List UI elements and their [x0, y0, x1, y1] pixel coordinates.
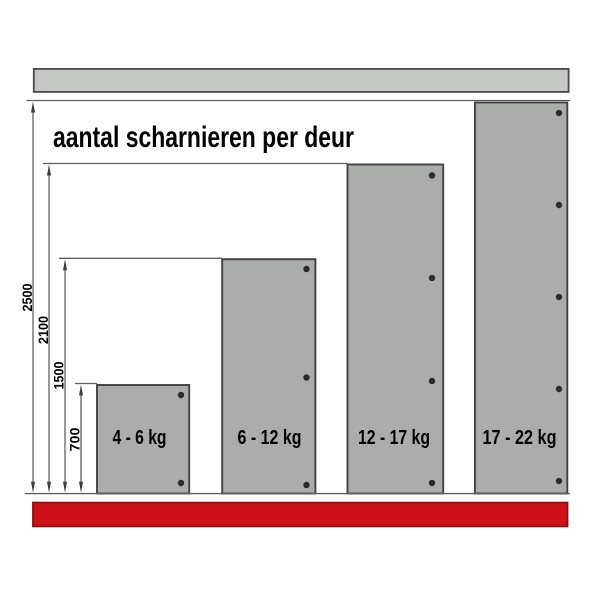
svg-text:17 - 22 kg: 17 - 22 kg [483, 427, 557, 449]
svg-text:aantal scharnieren per deur: aantal scharnieren per deur [53, 121, 354, 154]
svg-text:700: 700 [67, 427, 83, 451]
svg-text:4 - 6 kg: 4 - 6 kg [113, 427, 167, 449]
svg-text:6 - 12 kg: 6 - 12 kg [238, 427, 302, 449]
svg-text:12 - 17 kg: 12 - 17 kg [358, 427, 430, 449]
svg-text:1500: 1500 [51, 361, 67, 389]
svg-text:2500: 2500 [19, 283, 35, 311]
svg-text:2100: 2100 [35, 316, 51, 344]
